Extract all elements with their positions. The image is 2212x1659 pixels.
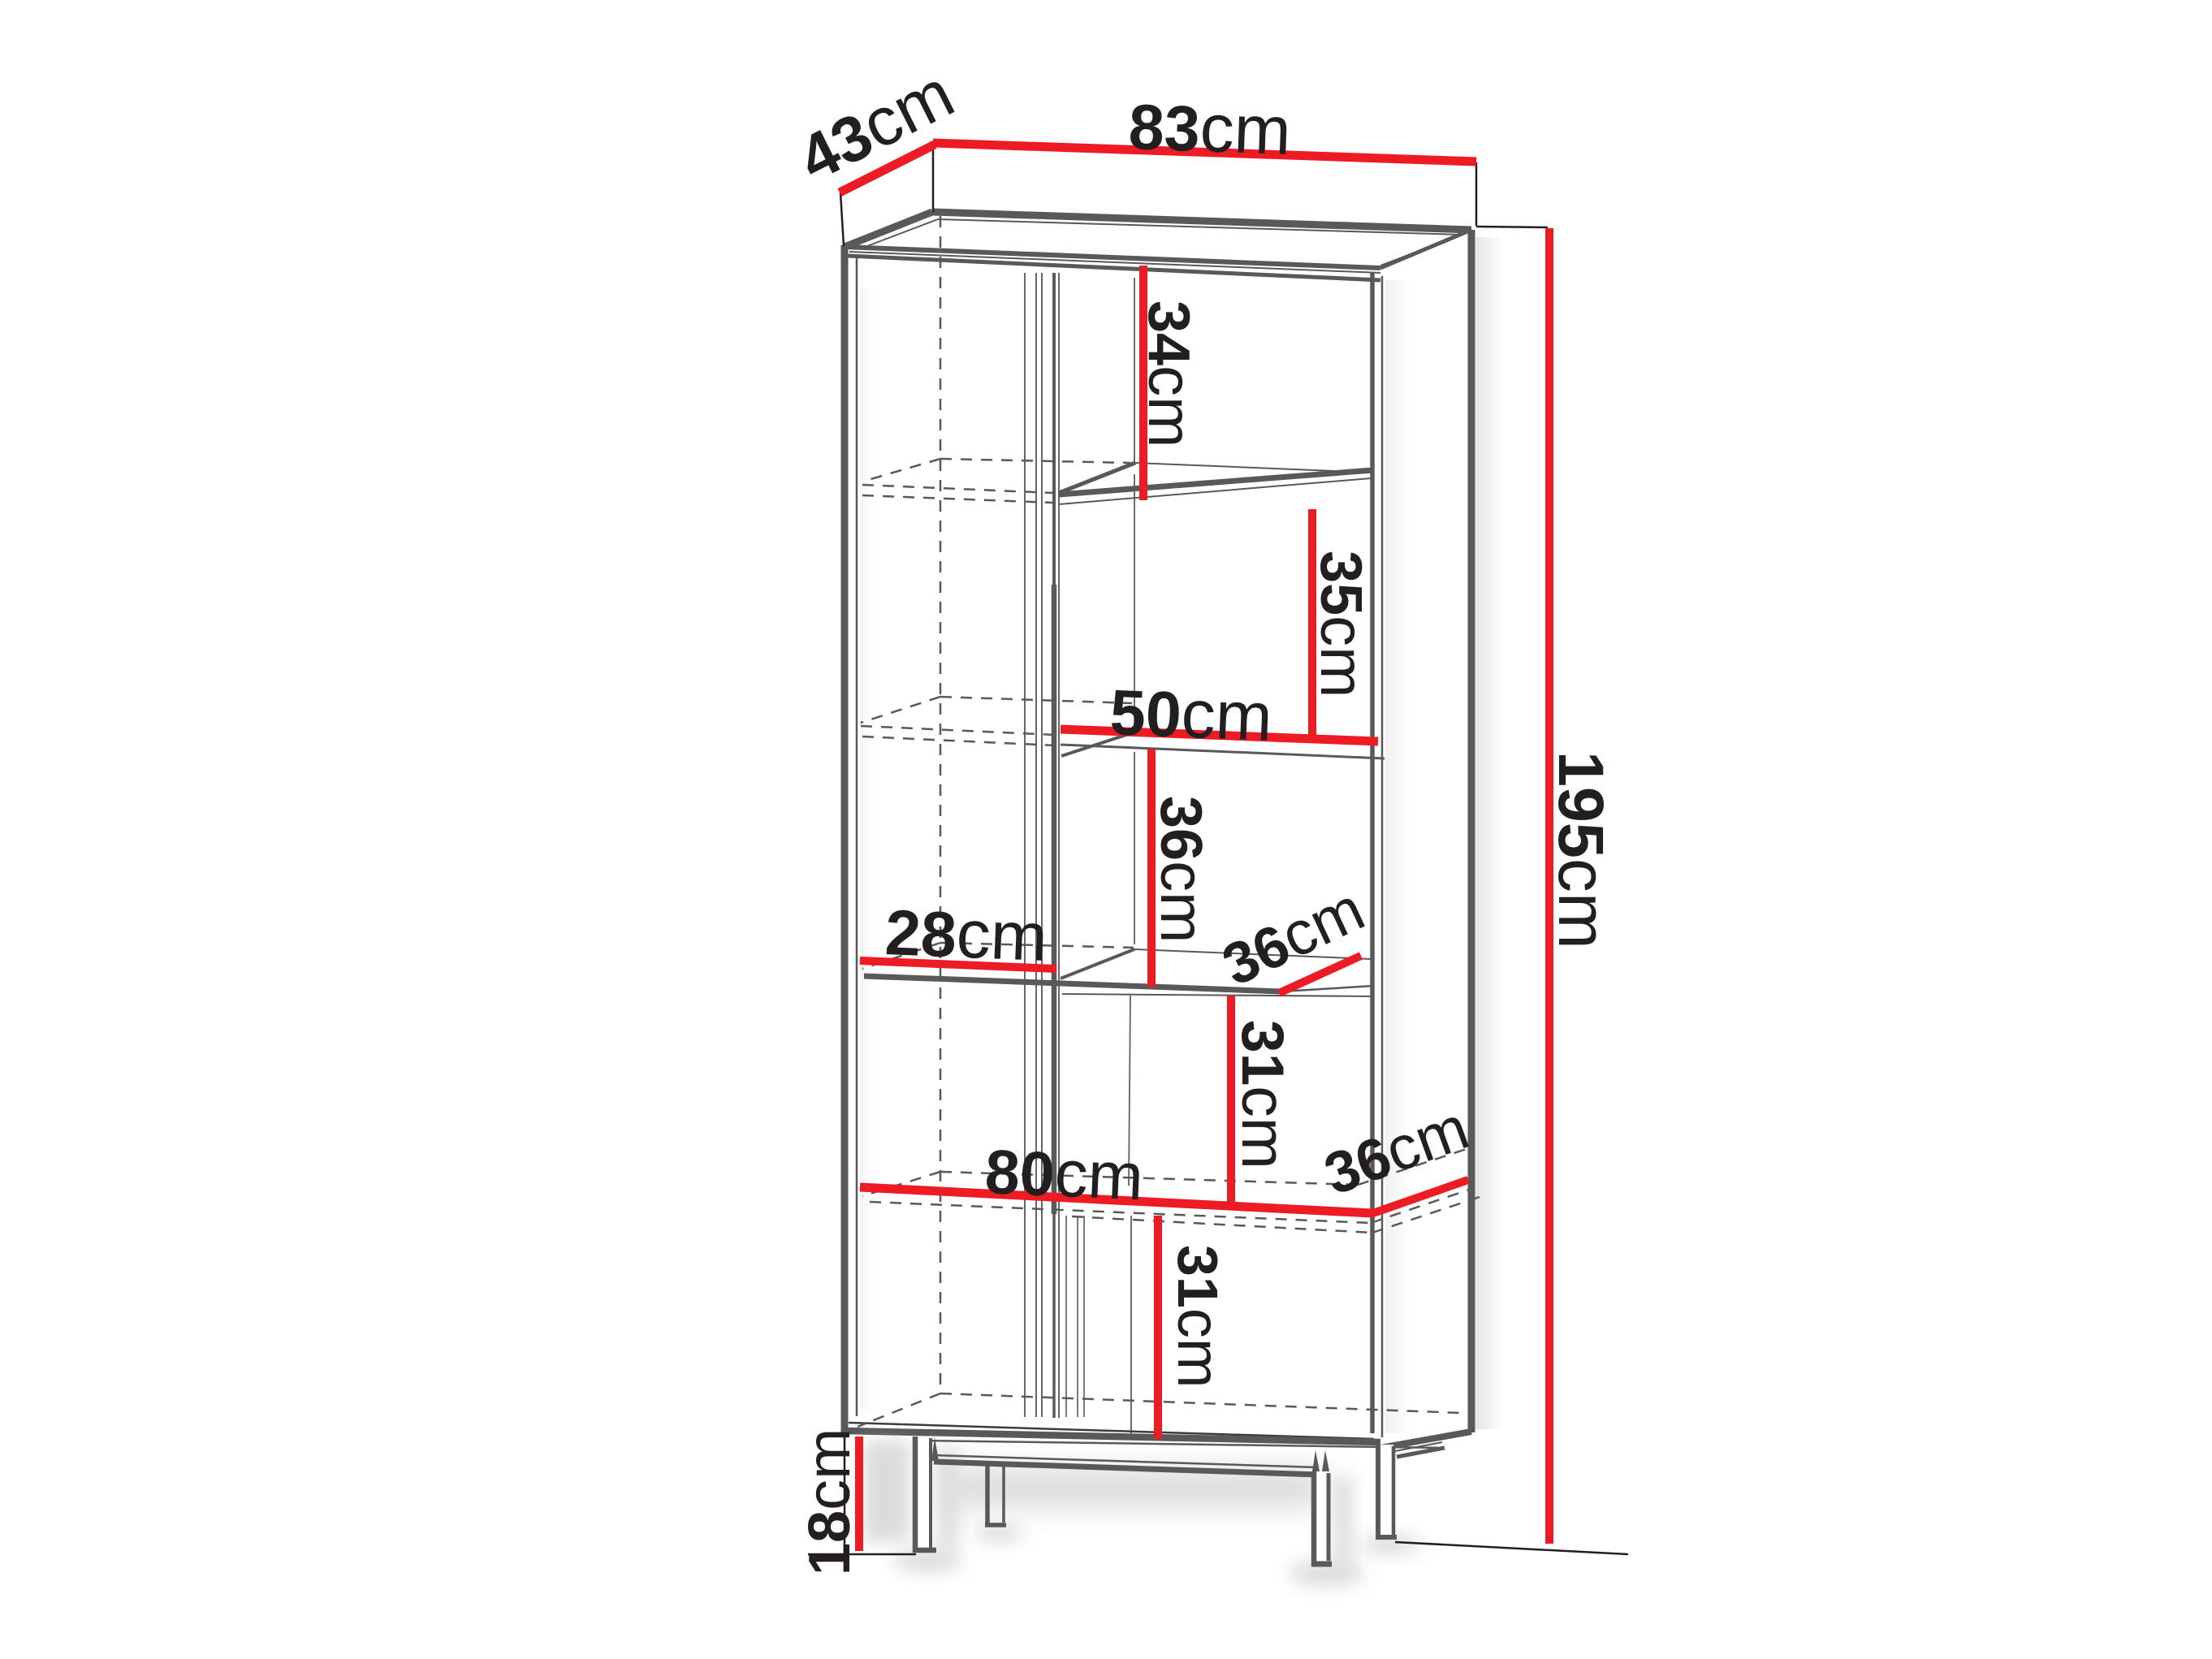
svg-text:28cm: 28cm (884, 892, 1048, 975)
svg-text:50cm: 50cm (1108, 672, 1273, 755)
svg-text:31cm: 31cm (1165, 1245, 1233, 1389)
svg-text:35cm: 35cm (1307, 551, 1376, 698)
svg-text:31cm: 31cm (1229, 1020, 1298, 1169)
svg-text:80cm: 80cm (983, 1134, 1145, 1214)
svg-text:18cm: 18cm (794, 1428, 863, 1575)
svg-text:195cm: 195cm (1545, 751, 1621, 949)
svg-text:36cm: 36cm (1147, 796, 1216, 943)
svg-text:83cm: 83cm (1127, 87, 1292, 169)
svg-text:34cm: 34cm (1135, 300, 1204, 447)
